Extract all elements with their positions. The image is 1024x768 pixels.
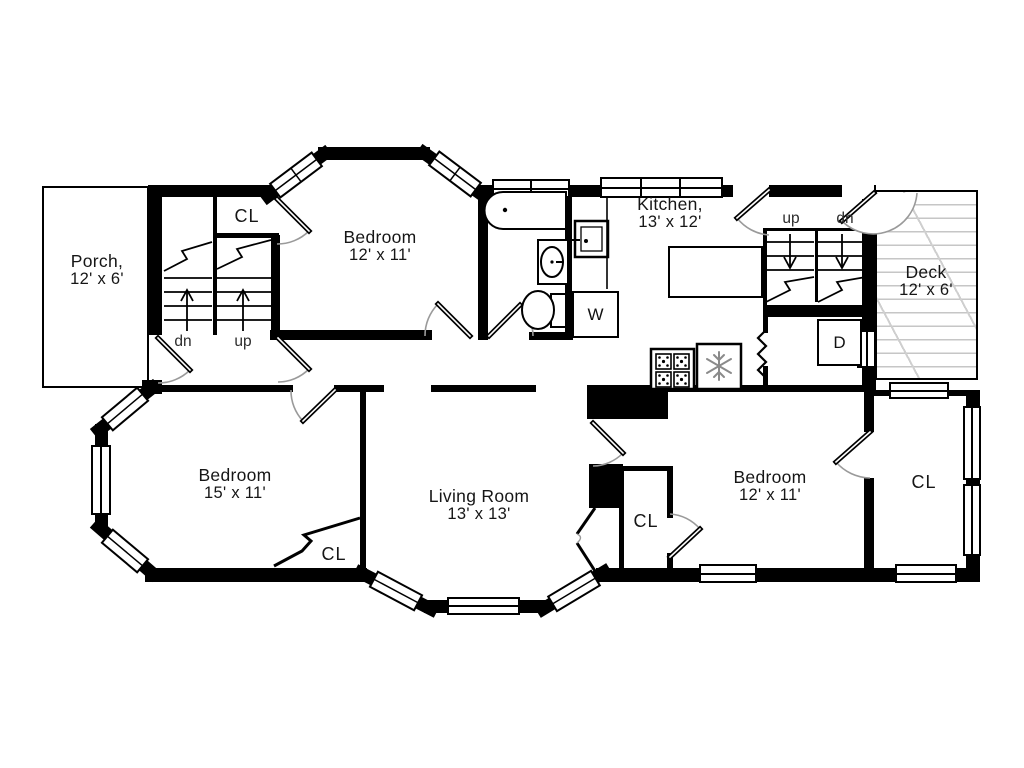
wall	[271, 235, 280, 338]
room-name: Living Room	[429, 487, 530, 505]
left-bedroom-closet-label: CL	[321, 544, 346, 565]
room-name: Bedroom	[343, 228, 416, 246]
wall	[565, 190, 572, 338]
wall	[270, 330, 432, 340]
wall	[213, 233, 279, 238]
kitchen-label: Kitchen, 13' x 12'	[637, 195, 703, 231]
wall	[431, 385, 536, 392]
wall	[148, 185, 162, 335]
accordion-doors	[274, 330, 766, 571]
room-dims: 12' x 6'	[899, 281, 953, 299]
washer-label: W	[587, 305, 603, 325]
dryer-box: D	[817, 319, 862, 366]
room-dims: 12' x 6'	[70, 270, 124, 288]
door-opening	[842, 183, 874, 199]
front-stairs-dn-label: dn	[174, 333, 191, 351]
toilet	[522, 291, 566, 329]
room-name: Kitchen,	[637, 195, 703, 213]
window-sunroom-right	[963, 406, 981, 480]
wall	[763, 305, 868, 317]
room-name: Porch,	[70, 252, 124, 270]
wall	[318, 147, 430, 160]
window-sunroom-top	[889, 382, 949, 399]
upper-bedroom-label: Bedroom 12' x 11'	[343, 228, 416, 264]
floor-plan: W D	[0, 0, 1024, 768]
room-dims: 13' x 12'	[637, 213, 703, 231]
wall	[763, 366, 768, 392]
hall-closet-label: CL	[234, 206, 259, 227]
bay-walls	[99, 153, 604, 609]
room-dims: 13' x 13'	[429, 505, 530, 523]
window-mullion	[530, 181, 532, 196]
dryer-label: D	[833, 333, 845, 353]
wall	[587, 385, 868, 392]
room-name: Deck	[899, 263, 953, 281]
room-name: Bedroom	[198, 466, 271, 484]
wall	[145, 568, 367, 582]
wall	[155, 385, 293, 392]
porch-label: Porch, 12' x 6'	[70, 252, 124, 288]
wall	[148, 185, 276, 197]
wall	[142, 380, 162, 394]
window-sunroom-bottom	[895, 564, 957, 583]
left-bedroom-label: Bedroom 15' x 11'	[198, 466, 271, 502]
window-bedroom-left	[91, 445, 111, 515]
wall	[587, 392, 668, 419]
washer-box: W	[572, 291, 619, 338]
wall	[360, 392, 366, 575]
front-stairs	[164, 240, 271, 331]
window-sunroom-right	[963, 484, 981, 556]
wall	[864, 478, 874, 575]
window-bedroom-bottom	[699, 564, 757, 583]
front-stairs-up-label: up	[234, 333, 251, 351]
room-dims: 12' x 11'	[733, 486, 806, 504]
door-opening	[733, 183, 769, 199]
back-stairs-dn-label: dn	[836, 210, 853, 228]
bathroom-sink	[538, 240, 568, 284]
room-dims: 12' x 11'	[343, 246, 416, 264]
right-bedroom-closet-label: CL	[633, 511, 658, 532]
bay-windows	[102, 152, 600, 612]
wall	[864, 390, 874, 432]
wall	[619, 466, 624, 575]
room-dims: 15' x 11'	[198, 484, 271, 502]
window-bathroom	[492, 179, 570, 198]
living-room-label: Living Room 13' x 13'	[429, 487, 530, 523]
deck-label: Deck 12' x 6'	[899, 263, 953, 299]
back-stairs-up-label: up	[782, 210, 799, 228]
refrigerator-icon	[697, 344, 741, 389]
wall	[815, 228, 818, 302]
wall	[667, 466, 673, 518]
wall	[619, 466, 673, 471]
window-living-bay	[447, 597, 520, 615]
kitchen-island	[668, 246, 763, 298]
wall	[763, 317, 768, 333]
wall	[334, 385, 384, 392]
wall	[589, 464, 623, 508]
wall	[478, 196, 488, 340]
sunroom-closet-label: CL	[911, 472, 936, 493]
room-name: Bedroom	[733, 468, 806, 486]
wall	[213, 197, 217, 335]
stove-icon	[651, 349, 694, 389]
right-bedroom-label: Bedroom 12' x 11'	[733, 468, 806, 504]
kitchen-sink	[572, 221, 608, 257]
